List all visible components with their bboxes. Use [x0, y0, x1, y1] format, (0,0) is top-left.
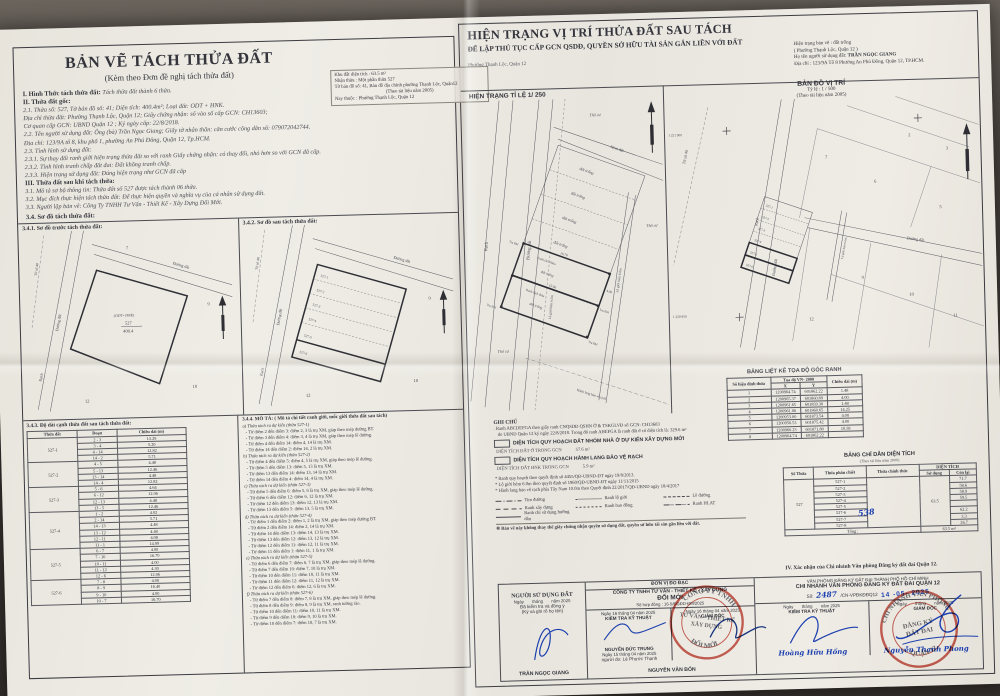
svg-text:527-6: 527-6 [745, 263, 754, 269]
svg-text:4.00: 4.00 [606, 289, 613, 295]
legend-swatch [494, 440, 510, 448]
svg-text:Đường đất: Đường đất [54, 313, 62, 332]
svg-text:Trụ BM: Trụ BM [588, 340, 599, 347]
svg-text:Rạch: Rạch [483, 241, 489, 251]
svg-text:đất trống: đất trống [553, 239, 569, 249]
svg-text:Ranh tách thửa: Ranh tách thửa [525, 288, 545, 298]
svg-text:527-2: 527-2 [316, 289, 325, 295]
svg-text:đất trống: đất trống [562, 215, 578, 225]
svg-text:Đường đất: Đường đất [771, 258, 779, 277]
svg-text:527-2: 527-2 [761, 215, 770, 221]
svg-text:Tờ số 40: Tờ số 40 [681, 150, 689, 165]
legend-line-sample [496, 508, 522, 510]
svg-text:Lộ giới hẻm 6.0m: Lộ giới hẻm 6.0m [615, 268, 623, 293]
segment-length-table: Thửa đất Đoạn Chiều dài (m) 527-12 - 313… [27, 427, 192, 606]
legend-item: Ranh chỉ sử dụng hướng dẫn [496, 511, 576, 521]
svg-text:527-4: 527-4 [754, 238, 763, 244]
location-map: Tờ số 40 1 221 900 1 220 950 Rạch Đường … [664, 95, 985, 355]
survey-company-column: ĐƠN VỊ ĐO ĐẠC CÔNG TY TNHH TƯ VẤN - THIẾ… [586, 578, 757, 678]
sketch-after-drawing: Tờ số 40 Đường đất Rạch Đường đất 527-1 … [243, 221, 459, 408]
line-legend: Tim đườngRanh lộ giớiLề đườngRanh xây dự… [495, 490, 746, 521]
subject-parcel: đất trống đất trống đất trống đất trống … [486, 140, 656, 346]
svg-text:Ranh tách thửa: Ranh tách thửa [537, 256, 557, 266]
right-sheet: HIỆN TRẠNG VỊ TRÍ THỬA ĐẤT SAU TÁCH ĐỂ L… [458, 10, 995, 687]
svg-text:2: 2 [908, 133, 911, 138]
svg-text:527-1: 527-1 [765, 204, 774, 210]
land-user-name: TRẦN NGỌC GIANG [501, 670, 587, 678]
notes-section: GHI CHÚ . Ranh ABCDEFGA theo giấy ranh C… [493, 413, 746, 532]
owner-info-block: Hiện trạng bản vẽ : đất trống ( Phường T… [794, 37, 973, 68]
svg-text:12: 12 [809, 317, 814, 322]
svg-text:3: 3 [946, 146, 949, 151]
svg-text:12: 12 [305, 393, 310, 398]
svg-text:Đường đất: Đường đất [172, 261, 191, 271]
svg-text:10: 10 [413, 378, 418, 383]
location-map-section: BẢN ĐỒ VỊ TRÍ Tỷ lệ : 1 / 500 (Theo tài … [664, 77, 986, 367]
svg-text:(ODT+HNK): (ODT+HNK) [114, 314, 135, 319]
svg-text:Hẻm đất: Hẻm đất [610, 144, 625, 153]
svg-text:đất trống: đất trống [540, 270, 554, 278]
svg-text:Đường đất: Đường đất [393, 255, 412, 265]
svg-text:5: 5 [939, 204, 942, 209]
left-sheet: BẢN VẼ TÁCH THỬA ĐẤT (Kèm theo Đơn đề ng… [12, 36, 470, 679]
svg-text:đất trống: đất trống [529, 302, 543, 310]
north-arrow [440, 292, 447, 334]
legend-line-sample [663, 495, 689, 497]
svg-text:527-1: 527-1 [320, 274, 329, 280]
sketch-row: 3.4.1. Sơ đồ trước tách thửa đất: Tờ số … [18, 212, 463, 420]
svg-text:6: 6 [874, 179, 877, 184]
registry-office-column: VĂN PHÒNG ĐĂNG KÝ ĐẤT ĐAI THÀNH PHỐ HỒ C… [755, 572, 983, 674]
legend-item: Ranh HLAT [664, 499, 736, 509]
decision-notes: Ranh quy hoạch theo quyết định số 4455/Q… [495, 469, 745, 494]
svg-text:400.4: 400.4 [123, 329, 134, 334]
signature-block: NGƯỜI SỬ DỤNG ĐẤT Ngày tháng năm 2025 Đã… [498, 571, 984, 682]
svg-text:đất trống: đất trống [579, 166, 595, 176]
svg-text:527-6: 527-6 [298, 350, 307, 356]
legend-line-sample [496, 516, 521, 518]
director-name: NGUYỄN VĂN BỐN [588, 665, 756, 675]
svg-text:10: 10 [909, 292, 914, 297]
date-stamp: 14 -05- 2025 [880, 588, 929, 599]
document-paper: BẢN VẼ TÁCH THỬA ĐẤT (Kèm theo Đơn đề ng… [0, 4, 1000, 696]
svg-text:Lộ giới hẻm 6.0m: Lộ giới hẻm 6.0m [840, 237, 848, 260]
boundary-description-lines: a) Thửa tách ra dự kiến (thửa 527-1)- Từ… [242, 418, 464, 627]
sketch-before: 3.4.1. Sơ đồ trước tách thửa đất: Tờ số … [18, 219, 243, 421]
current-state-map-section: HIỆN TRẠNG TỈ LỆ 1/ 250 Rạch Đường đất L… [461, 85, 673, 418]
north-arrow [963, 125, 970, 180]
svg-text:Trụ BM: Trụ BM [509, 239, 520, 246]
current-state-map: Rạch Đường đất Lộ giới hẻm 6.0m Hẻm đất … [461, 95, 669, 412]
svg-text:527: 527 [125, 321, 133, 326]
coordinate-table-section: BẢNG LIỆT KÊ TỌA ĐỘ GÓC RANH Số hiệu đỉn… [726, 366, 864, 441]
svg-text:527-3: 527-3 [758, 227, 767, 233]
svg-text:12: 12 [85, 399, 90, 404]
svg-text:9: 9 [861, 275, 864, 280]
svg-text:9: 9 [207, 302, 210, 307]
area-table: Số Thửa Thửa phân chiết Thửa chính thức … [783, 462, 979, 536]
svg-text:Đường đất: Đường đất [525, 240, 532, 260]
legend-line-sample [576, 506, 602, 508]
area-table-section: BẢNG CHỈ DẪN DIỆN TÍCH (Theo tài liệu nă… [782, 449, 978, 536]
legend-line-sample [664, 503, 690, 505]
svg-text:Thổ cư: Thổ cư [498, 349, 510, 354]
legend-line-sample [575, 498, 601, 500]
svg-text:527-5: 527-5 [750, 251, 759, 257]
svg-text:9: 9 [428, 296, 431, 301]
svg-text:Tờ số 40: Tờ số 40 [34, 263, 40, 276]
svg-text:7: 7 [825, 155, 828, 160]
confirmation-heading: IV. Xác nhận của Chi nhánh Văn phòng Đăn… [785, 561, 937, 571]
sketch-after: 3.4.2. Sơ đồ sau tách thửa đất: Tờ số 40… [238, 213, 464, 415]
legend-item: Ranh bao đồng [576, 501, 664, 511]
svg-text:11: 11 [953, 313, 957, 318]
north-arrow [648, 103, 655, 153]
left-header: BẢN VẼ TÁCH THỬA ĐẤT (Kèm theo Đơn đề ng… [14, 48, 325, 85]
svg-text:Rạch: Rạch [38, 373, 44, 382]
svg-text:7: 7 [126, 246, 129, 251]
svg-text:527-5: 527-5 [303, 334, 312, 340]
svg-text:đất trống: đất trống [570, 190, 586, 200]
svg-text:527-3: 527-3 [312, 303, 321, 309]
left-bottom-row: 3.4.3. Độ dài cạnh thửa đất sau tách thử… [23, 409, 470, 679]
svg-text:10: 10 [193, 384, 198, 389]
legend-line-sample [495, 500, 521, 502]
land-user-column: NGƯỜI SỬ DỤNG ĐẤT Ngày tháng năm 2025 Đã… [499, 583, 588, 681]
sketch-before-drawing: Tờ số 40 Đường đất Rạch Đường đất (ODT+H… [22, 227, 238, 414]
coordinate-table: Số hiệu đỉnh thửa Tọa độ VN- 2000 Chiều … [726, 374, 864, 441]
boundary-description-section: 3.4.4. MÔ TẢ: ( Mô tả chi tiết ranh giới… [238, 410, 470, 674]
svg-text:1 221 900: 1 221 900 [668, 134, 682, 138]
svg-text:Tờ số 40: Tờ số 40 [254, 257, 260, 270]
svg-text:Đường đất: Đường đất [275, 308, 283, 327]
svg-text:Hành lang bảo vệ rạch: Hành lang bảo vệ rạch [576, 388, 607, 401]
svg-text:Thổ cư: Thổ cư [589, 112, 601, 117]
north-arrow [219, 297, 226, 339]
segment-length-section: 3.4.3. Độ dài cạnh thửa đất sau tách thử… [23, 416, 245, 680]
photo-scene: BẢN VẼ TÁCH THỬA ĐẤT (Kèm theo Đơn đề ng… [0, 0, 1000, 696]
svg-text:Thổ cư: Thổ cư [646, 223, 658, 228]
handwritten-doc-number: 2487 [816, 590, 837, 600]
legend-swatch [494, 457, 510, 465]
right-locality: Phường Thạnh Lộc, Quận 12 [468, 55, 788, 68]
svg-text:527-4: 527-4 [308, 318, 317, 324]
svg-text:1 220 950: 1 220 950 [673, 315, 687, 319]
svg-text:Đường đất: Đường đất [907, 236, 926, 243]
signer-name-script: Hoàng Hữu Hồng [756, 646, 869, 658]
signer-name-script: Nguyễn Thanh Phong [870, 643, 983, 655]
svg-text:Rạch: Rạch [258, 368, 264, 377]
svg-text:Trụ BM: Trụ BM [599, 308, 610, 315]
svg-text:Trụ BM: Trụ BM [486, 303, 497, 310]
svg-text:Lộ giới hẻm 6.0m: Lộ giới hẻm 6.0m [548, 294, 554, 319]
